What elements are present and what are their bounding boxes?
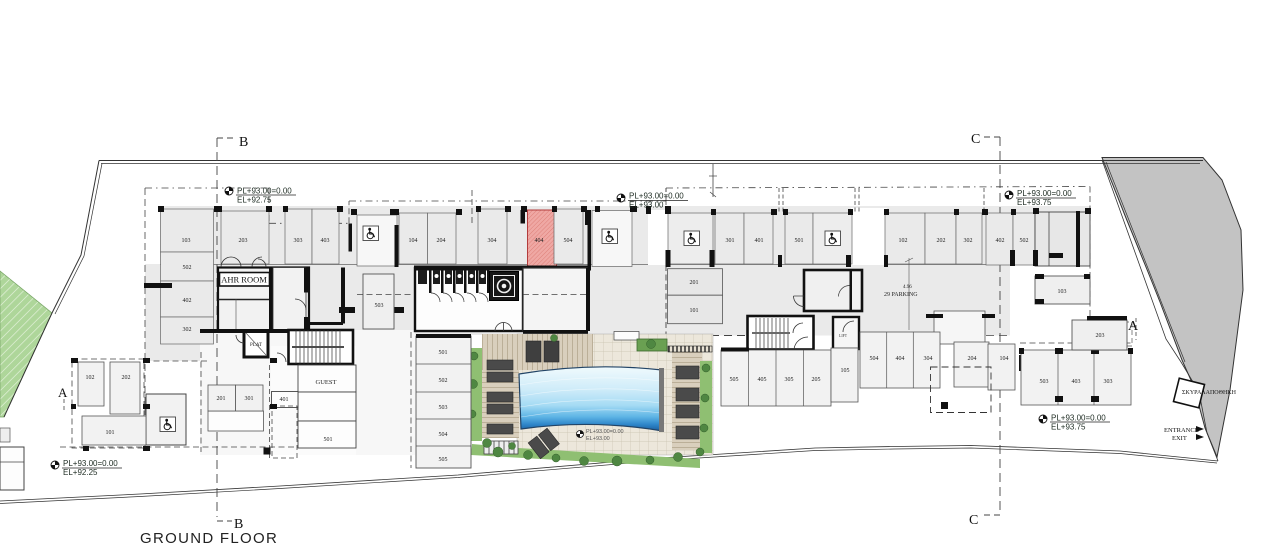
- svg-text:403: 403: [321, 238, 330, 244]
- svg-text:404: 404: [896, 356, 905, 362]
- svg-text:EL+93.00: EL+93.00: [629, 201, 664, 210]
- svg-text:PL+93.00=0.00: PL+93.00=0.00: [63, 459, 118, 468]
- svg-text:LIFT: LIFT: [839, 334, 848, 338]
- svg-text:101: 101: [690, 308, 699, 314]
- svg-text:404: 404: [535, 238, 544, 244]
- svg-text:PL+93.00=0.00: PL+93.00=0.00: [237, 187, 292, 196]
- svg-text:204: 204: [968, 356, 977, 362]
- svg-text:502: 502: [183, 265, 192, 271]
- svg-text:101: 101: [106, 430, 115, 436]
- svg-text:PL+93.00=0.00: PL+93.00=0.00: [1017, 189, 1072, 198]
- svg-text:103: 103: [182, 238, 191, 244]
- svg-text:202: 202: [937, 238, 946, 244]
- svg-text:104: 104: [409, 238, 418, 244]
- svg-text:A: A: [58, 385, 68, 400]
- svg-text:304: 304: [488, 238, 497, 244]
- svg-text:203: 203: [239, 238, 248, 244]
- svg-text:205: 205: [812, 377, 821, 383]
- svg-text:105: 105: [841, 368, 850, 374]
- svg-text:305: 305: [785, 377, 794, 383]
- svg-text:ENTRANCE: ENTRANCE: [1164, 427, 1199, 434]
- svg-text:502: 502: [439, 378, 448, 384]
- svg-text:203: 203: [1096, 333, 1105, 339]
- svg-text:EL+93.75: EL+93.75: [1051, 423, 1086, 432]
- svg-text:EL+92.75: EL+92.75: [237, 196, 272, 205]
- svg-text:EL+92.25: EL+92.25: [63, 468, 98, 477]
- svg-text:303: 303: [294, 238, 303, 244]
- svg-text:29 PARKING: 29 PARKING: [884, 292, 918, 298]
- svg-text:302: 302: [183, 327, 192, 333]
- svg-text:301: 301: [726, 238, 735, 244]
- svg-text:401: 401: [755, 238, 764, 244]
- svg-text:A: A: [1128, 319, 1139, 334]
- svg-text:405: 405: [758, 377, 767, 383]
- svg-text:102: 102: [899, 238, 908, 244]
- svg-text:ΣΚΥΡΑΛΑΠΟΘΗΚΗ: ΣΚΥΡΑΛΑΠΟΘΗΚΗ: [1182, 390, 1237, 396]
- svg-text:402: 402: [183, 298, 192, 304]
- svg-text:505: 505: [730, 377, 739, 383]
- svg-text:PL+93.00=0.00: PL+93.00=0.00: [1051, 414, 1106, 423]
- svg-text:EL+93.75: EL+93.75: [1017, 198, 1052, 207]
- svg-text:502: 502: [1020, 238, 1029, 244]
- svg-text:C: C: [969, 513, 978, 528]
- svg-text:204: 204: [437, 238, 446, 244]
- svg-text:B: B: [239, 135, 248, 150]
- svg-text:102: 102: [86, 375, 95, 381]
- svg-text:103: 103: [1058, 289, 1067, 295]
- svg-text:201: 201: [690, 280, 699, 286]
- svg-text:503: 503: [1040, 379, 1049, 385]
- svg-text:202: 202: [122, 375, 131, 381]
- svg-text:402: 402: [996, 238, 1005, 244]
- svg-text:AHR ROOM: AHR ROOM: [221, 275, 267, 285]
- svg-text:505: 505: [439, 457, 448, 463]
- svg-text:EXIT: EXIT: [1172, 435, 1187, 442]
- svg-text:503: 503: [439, 405, 448, 411]
- svg-text:303: 303: [1104, 379, 1113, 385]
- svg-text:501: 501: [439, 350, 448, 356]
- svg-text:201: 201: [217, 396, 226, 402]
- svg-text:PL+93.00=0.00: PL+93.00=0.00: [586, 429, 624, 435]
- svg-text:4.96: 4.96: [903, 285, 912, 290]
- svg-text:401: 401: [280, 397, 289, 403]
- svg-text:C: C: [971, 132, 980, 147]
- svg-text:501: 501: [324, 437, 333, 443]
- svg-text:304: 304: [924, 356, 933, 362]
- svg-text:504: 504: [564, 238, 573, 244]
- svg-text:EL+93.00: EL+93.00: [586, 436, 610, 442]
- svg-text:504: 504: [870, 356, 879, 362]
- svg-text:501: 501: [795, 238, 804, 244]
- svg-text:504: 504: [439, 432, 448, 438]
- svg-text:503: 503: [375, 303, 384, 309]
- svg-text:GROUND FLOOR: GROUND FLOOR: [140, 530, 278, 547]
- svg-text:PL+93.00=0.00: PL+93.00=0.00: [629, 192, 684, 201]
- svg-text:301: 301: [245, 396, 254, 402]
- svg-text:302: 302: [964, 238, 973, 244]
- svg-text:GUEST: GUEST: [316, 379, 337, 386]
- svg-text:403: 403: [1072, 379, 1081, 385]
- svg-text:PLAT: PLAT: [250, 343, 262, 348]
- svg-text:104: 104: [1000, 356, 1009, 362]
